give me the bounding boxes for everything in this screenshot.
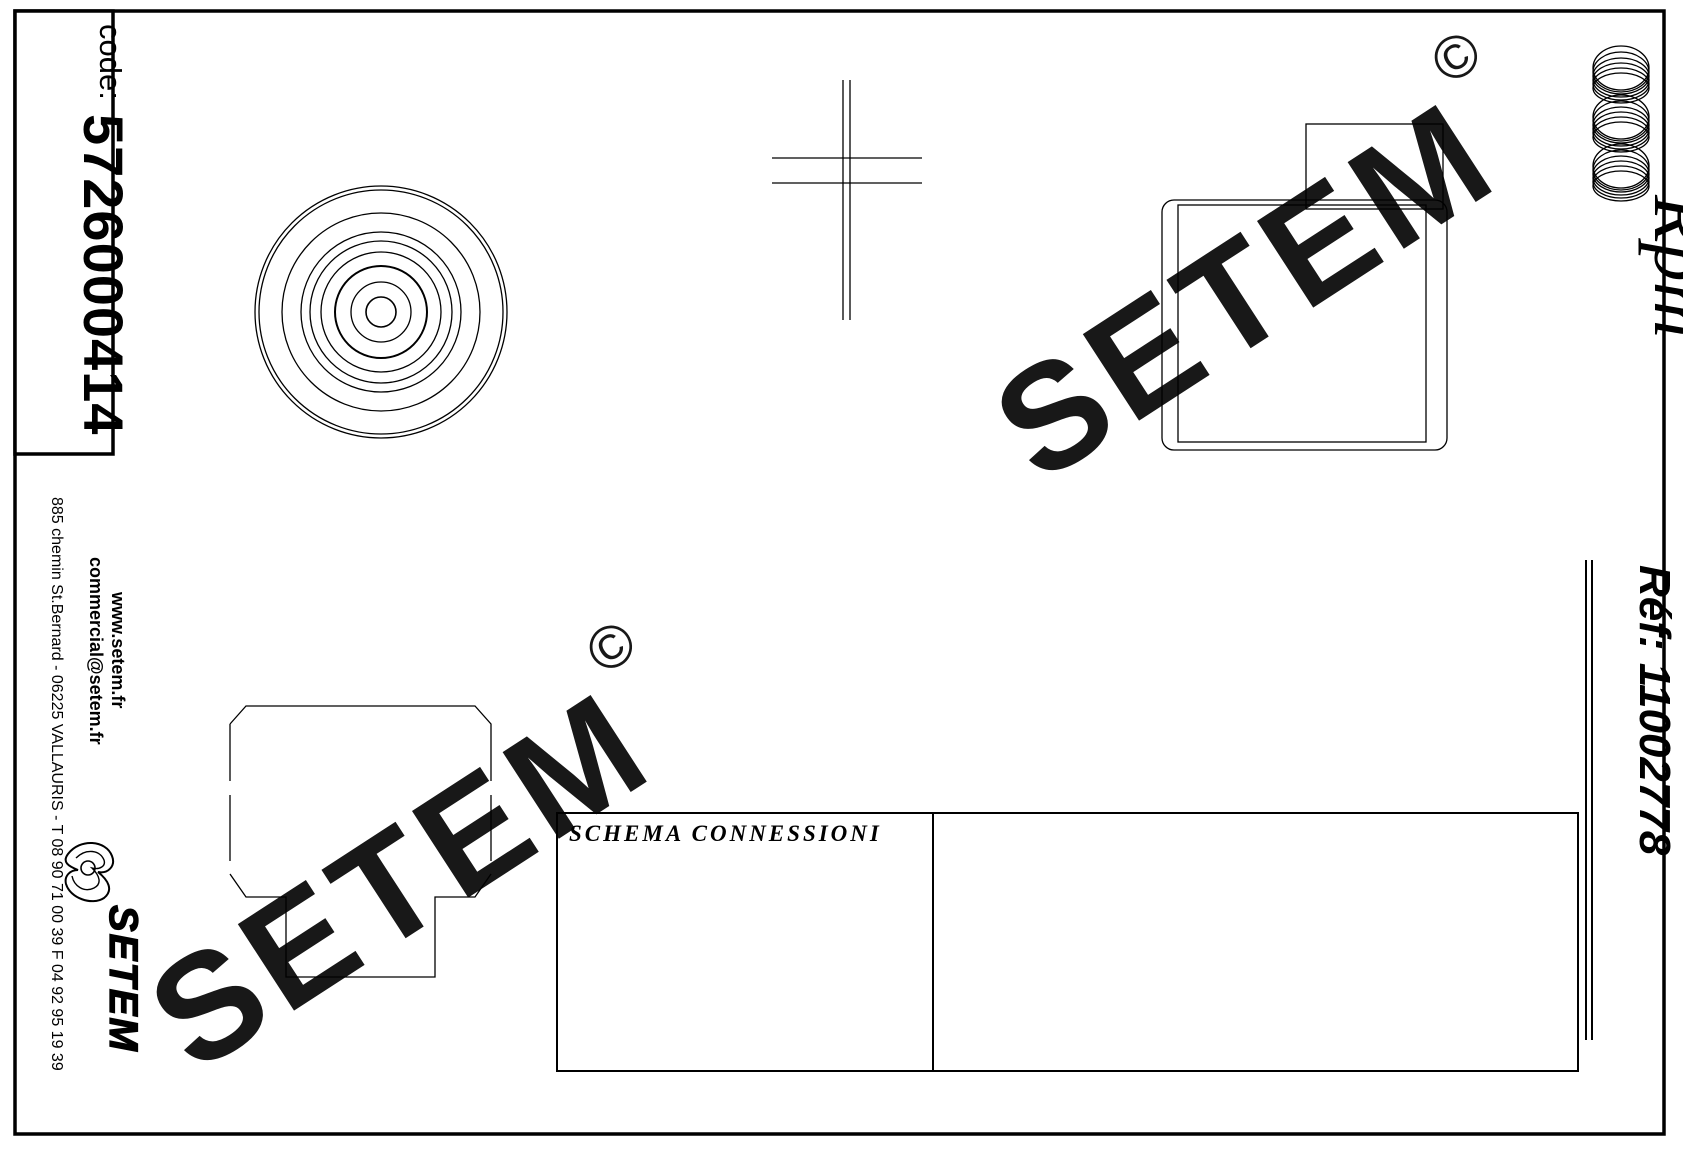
svg-text:SETEM: SETEM xyxy=(101,905,145,1053)
svg-text:Rpm: Rpm xyxy=(1638,194,1683,338)
svg-text:www.setem.fr: www.setem.fr xyxy=(108,591,128,708)
svg-text:commercial@setem.fr: commercial@setem.fr xyxy=(86,557,106,745)
svg-text:5726000414: 5726000414 xyxy=(72,114,135,435)
svg-text:code:: code: xyxy=(93,24,128,100)
svg-text:SCHEMA CONNESSIONI: SCHEMA CONNESSIONI xyxy=(569,821,882,846)
svg-text:Réf: 11002778: Réf: 11002778 xyxy=(1630,565,1679,856)
svg-text:885 chemin St.Bernard - 0622: 885 chemin St.Bernard - 06225 VALLAURIS … xyxy=(48,497,65,1071)
